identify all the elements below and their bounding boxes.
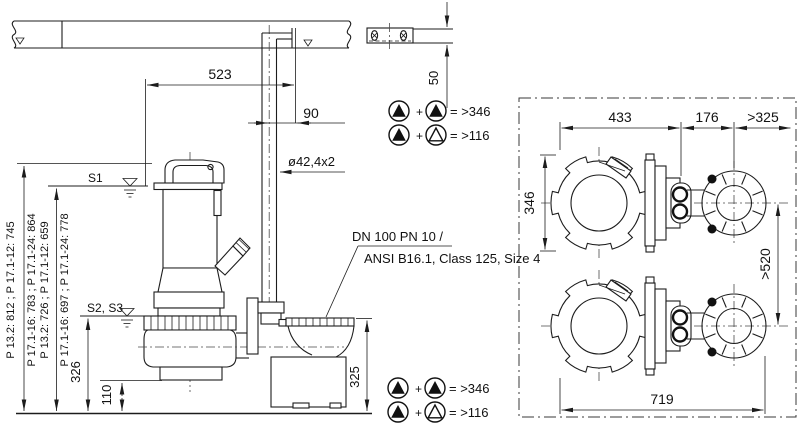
claw-top [258, 302, 284, 313]
elbow-inner-curve [288, 326, 312, 355]
cable-gland [215, 238, 250, 275]
dim-176: 176 [683, 109, 733, 128]
dim-s1-height: P 13.2: 726 ; P 17.1-12: 659 P 17.1-16: … [39, 189, 71, 412]
pump-plan-view-2 [541, 270, 789, 382]
clearance-legend-bottom: + = >346 + = >116 [388, 378, 490, 422]
dim-326-label: 326 [68, 361, 83, 383]
rail-bracket-detail [367, 23, 453, 49]
discharge-flange [286, 318, 354, 326]
beam-mark-left [16, 38, 24, 44]
pump-running-icon [426, 101, 446, 121]
plus-sign: + [416, 129, 423, 143]
pipe-spec-label: ø42,4x2 [288, 154, 335, 169]
pump-standby-icon [426, 125, 446, 145]
plan-view-panel: 433 176 >325 346 >520 719 [519, 98, 796, 417]
plus-sign: + [415, 406, 422, 420]
flange-spec-callout: DN 100 PN 10 / ANSI B16.1, Class 125, Si… [326, 229, 540, 317]
dim-433-label: 433 [608, 109, 632, 125]
water-level-s2-s3: S2, S3 [80, 301, 146, 327]
sump-boundary [519, 98, 796, 417]
clearance-legend-top: + = >346 + = >116 [389, 101, 491, 145]
dim-50-label: 50 [426, 71, 441, 85]
clearance-duty-standby: = >116 [450, 128, 490, 143]
pump-plan-view-1 [541, 147, 789, 259]
dim-min-520: >520 [757, 205, 778, 325]
dim-110: 110 [99, 381, 162, 412]
elbow-base [271, 357, 346, 407]
dim-326: 326 [68, 319, 88, 412]
seal-housing [154, 292, 224, 308]
pump-running-icon [388, 378, 408, 398]
pump-installation-drawing: 50 523 90 ø42,4x2 S1 [0, 0, 800, 426]
beam-mark-right [304, 40, 312, 46]
dim-346-label: 346 [521, 191, 537, 215]
pump-height-label-2: P 17.1-16: 783 ; P 17.1-24: 864 [26, 213, 38, 366]
cable-guard [214, 191, 221, 216]
dim-719: 719 [562, 391, 764, 410]
dim-523-label: 523 [208, 66, 232, 82]
claw-plate [247, 298, 258, 354]
level-s1-label: S1 [88, 171, 103, 185]
dim-110-label: 110 [99, 385, 114, 406]
motor-lower-taper [158, 268, 222, 292]
pump-handle [165, 160, 224, 183]
dim-min-325-label: >325 [747, 109, 779, 125]
water-level-icon [123, 179, 137, 198]
pump-running-icon [389, 125, 409, 145]
flange-spec-line2: ANSI B16.1, Class 125, Size 4 [364, 251, 540, 266]
clearance-duty-duty: = >346 [450, 104, 491, 119]
level-s2s3-label: S2, S3 [87, 301, 123, 315]
dim-433: 433 [562, 109, 680, 128]
clearance-duty-duty: = >346 [449, 381, 490, 396]
dim-325-label: 325 [347, 366, 362, 388]
volute [144, 330, 236, 367]
pipe-spec-callout: ø42,4x2 [280, 154, 345, 172]
discharge-elbow-assembly [247, 298, 354, 408]
pump-running-icon [388, 402, 408, 422]
dim-50: 50 [426, 2, 447, 108]
dim-min-325: >325 [736, 109, 791, 128]
flange-spec-line1: DN 100 PN 10 / [352, 229, 443, 244]
motor-cap [154, 183, 222, 190]
plus-sign: + [416, 105, 423, 119]
plus-sign: + [415, 382, 422, 396]
support-beam [12, 21, 350, 48]
clearance-duty-standby: = >116 [449, 405, 489, 420]
dim-719-label: 719 [650, 391, 674, 407]
dim-176-label: 176 [695, 109, 719, 125]
water-level-icon [120, 309, 134, 328]
dimension-drawing-page: 50 523 90 ø42,4x2 S1 [0, 0, 800, 426]
elbow-outer-curve [336, 326, 354, 357]
water-level-s1: S1 [48, 171, 148, 197]
dim-90-label: 90 [303, 105, 319, 121]
cooling-rib-ring [144, 316, 236, 330]
pump-height-label-1: P 13.2: 812 ; P 17.1-12: 745 [5, 221, 17, 358]
pump-standby-icon [425, 402, 445, 422]
pump-side-view [138, 152, 344, 392]
pump-running-icon [425, 378, 445, 398]
claw-clamp [261, 313, 281, 324]
pump-height-label-4: P 17.1-16: 697 ; P 17.1-24: 778 [59, 213, 71, 366]
dim-325: 325 [347, 319, 372, 412]
pump-height-label-3: P 13.2: 726 ; P 17.1-12: 659 [39, 221, 51, 358]
guide-pipe [262, 25, 296, 316]
adapter-ring [158, 308, 220, 316]
suction-piece [160, 367, 222, 380]
pump-running-icon [389, 101, 409, 121]
motor-housing [163, 190, 217, 269]
dim-min-520-label: >520 [757, 248, 773, 280]
